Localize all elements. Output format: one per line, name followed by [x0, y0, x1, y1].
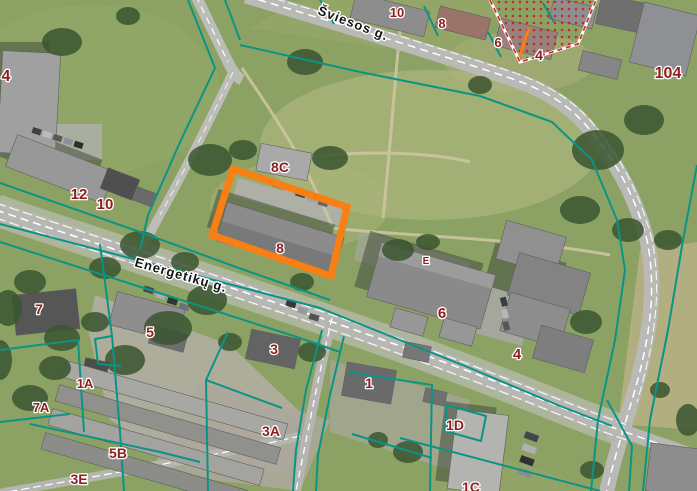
address-label-8-top: 8	[438, 16, 445, 31]
address-label-6-top: 6	[494, 35, 501, 50]
map-svg: Šviesos g. Energetikų g. 10 8 6 4 104 4 …	[0, 0, 697, 491]
address-label-1: 1	[365, 375, 373, 391]
address-label-7: 7	[35, 301, 43, 317]
address-label-1D: 1D	[446, 417, 464, 433]
address-label-5: 5	[146, 324, 154, 340]
address-label-5B: 5B	[109, 445, 127, 461]
address-label-8-selected: 8	[276, 240, 284, 256]
address-label-12: 12	[71, 186, 88, 203]
address-label-E: E	[423, 256, 430, 267]
address-label-6-mid: 6	[438, 305, 446, 322]
address-label-3A: 3A	[262, 423, 280, 439]
address-label-8C: 8C	[271, 159, 289, 175]
address-label-3E: 3E	[70, 471, 87, 487]
address-label-4-mid: 4	[513, 346, 522, 363]
address-label-1C: 1C	[462, 479, 480, 491]
address-label-7A: 7A	[33, 400, 50, 415]
address-label-3: 3	[270, 341, 278, 357]
address-label-1A: 1A	[77, 376, 94, 391]
address-label-10-left: 10	[97, 196, 114, 213]
address-label-104: 104	[655, 65, 682, 82]
address-label-4-left: 4	[2, 68, 11, 85]
address-label-4-top: 4	[535, 47, 543, 63]
map-canvas[interactable]: Šviesos g. Energetikų g. 10 8 6 4 104 4 …	[0, 0, 697, 491]
address-label-10-top: 10	[390, 5, 404, 20]
